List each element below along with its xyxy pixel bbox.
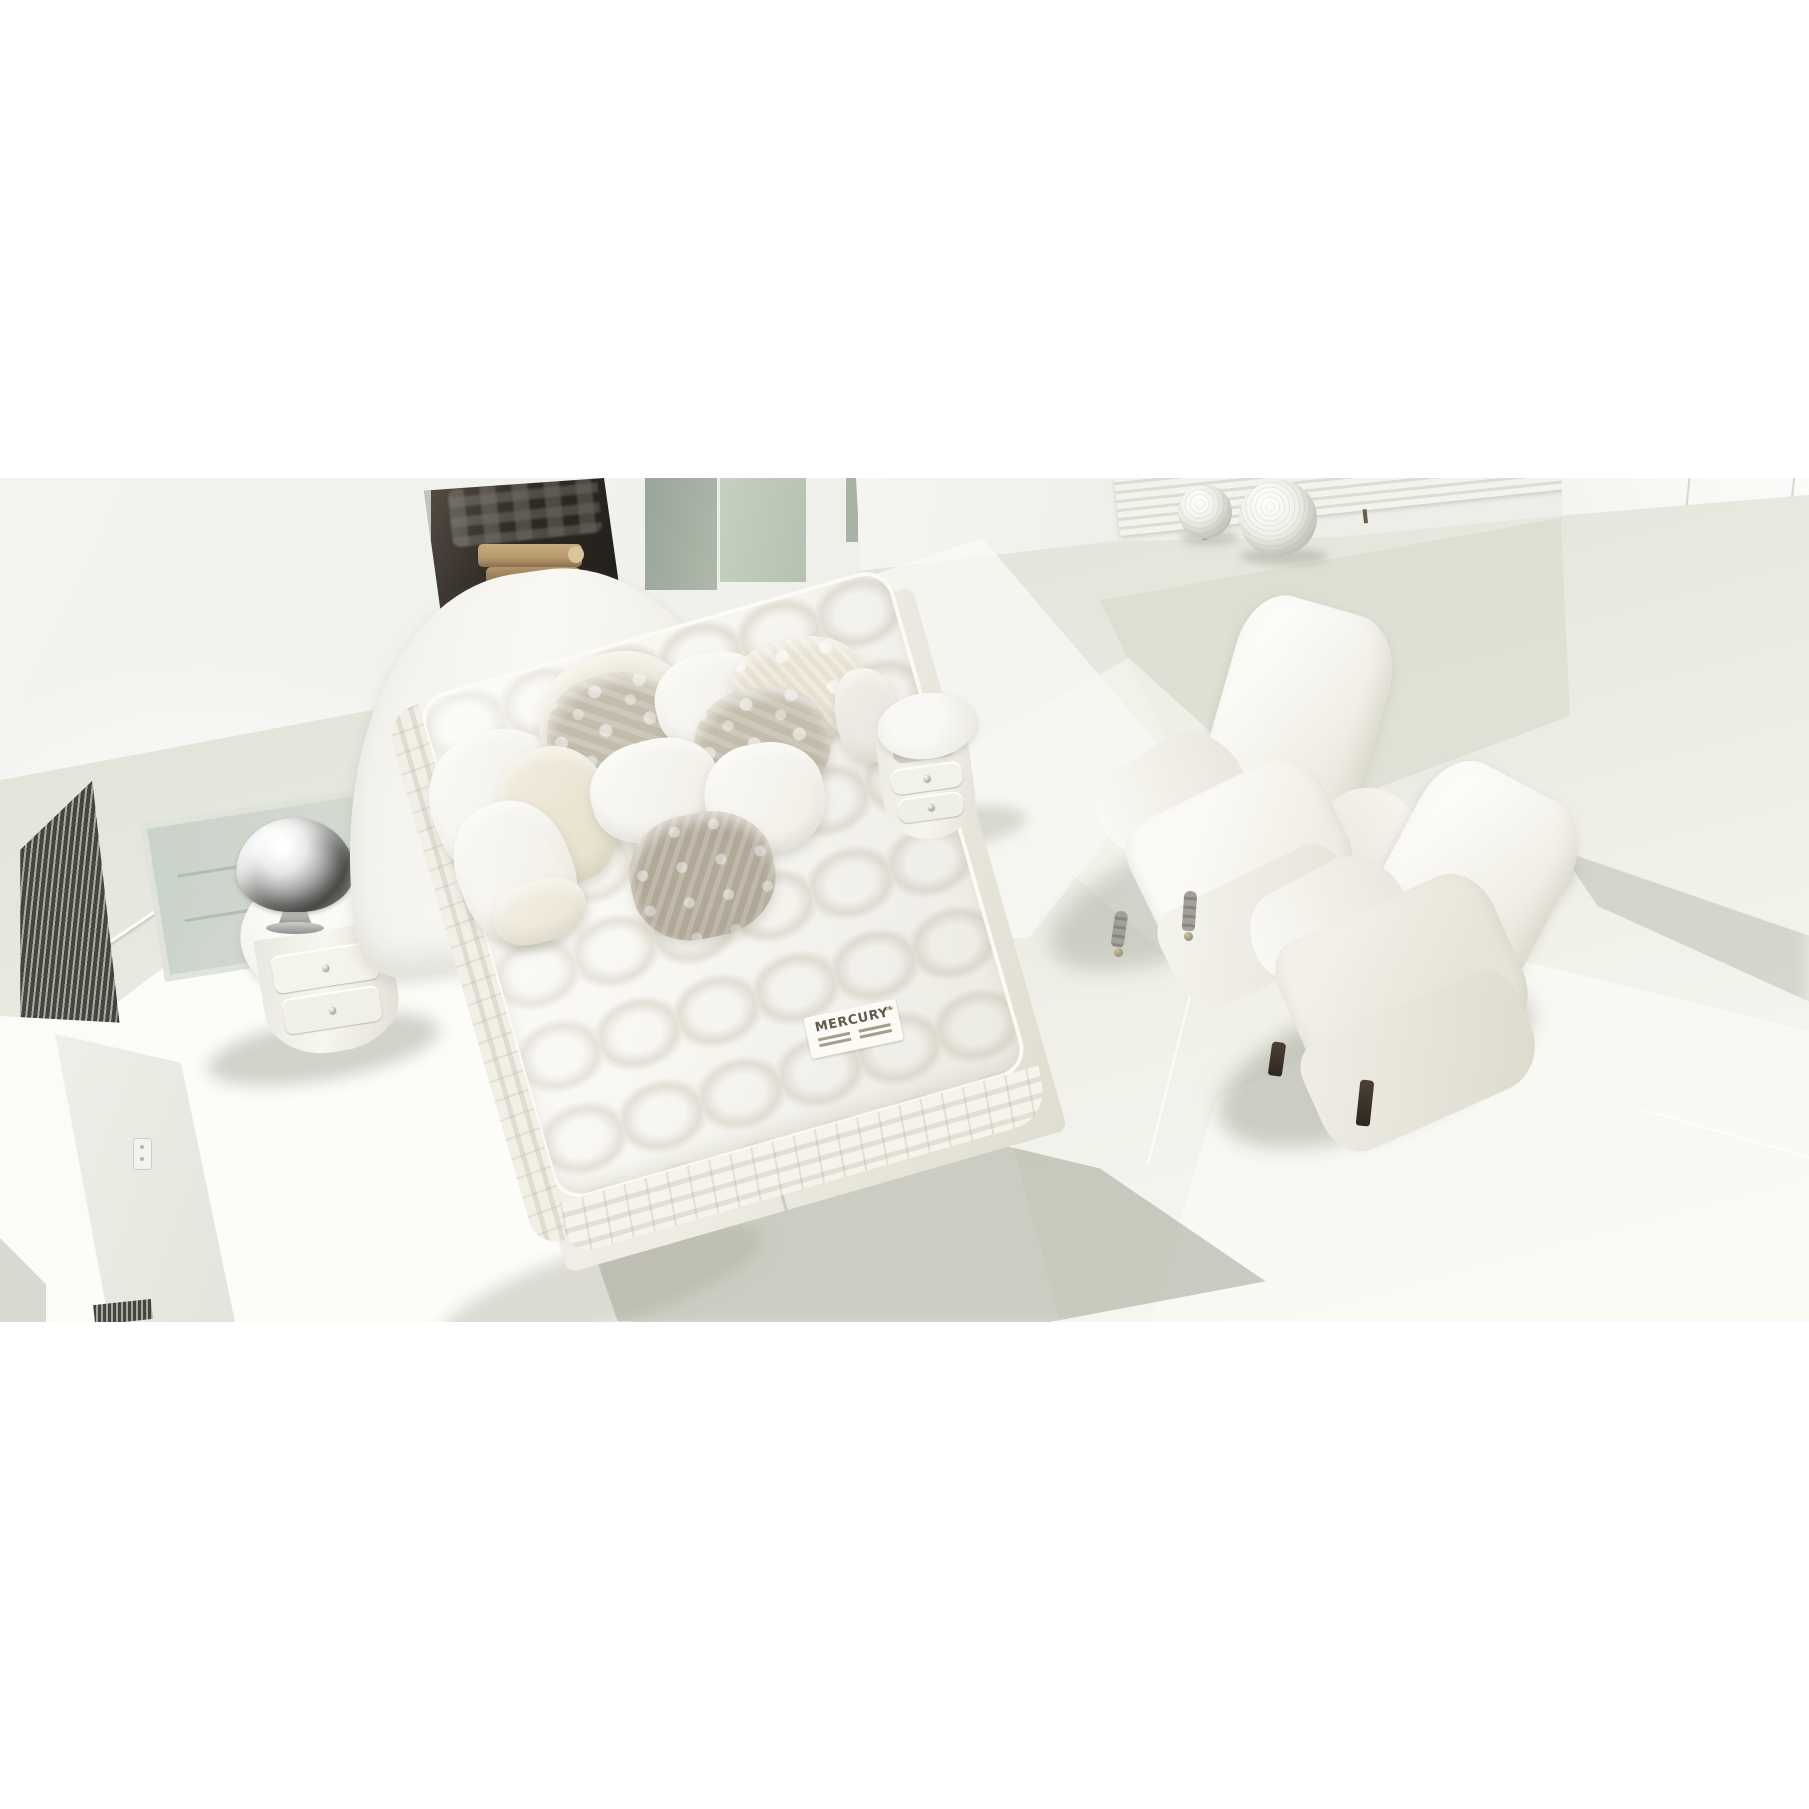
- switch-dot: [140, 1157, 144, 1161]
- armchair-with-dark-legs: [1240, 750, 1580, 1150]
- glass-partition-panel: [645, 478, 717, 590]
- turned-leg: [1182, 891, 1198, 932]
- niche-tufted-reflection: [447, 478, 602, 548]
- silver-bowl-base: [266, 922, 324, 934]
- bedroom-photo: MERCURY ❧: [0, 478, 1809, 1322]
- switch-dot: [140, 1145, 144, 1149]
- turned-leg: [1111, 910, 1129, 947]
- log-end-grain: [568, 546, 584, 563]
- caster-wheel: [1114, 948, 1123, 957]
- radiator-leg: [1363, 509, 1368, 523]
- firewood-log: [478, 544, 582, 567]
- niche-metal-frame: [420, 478, 431, 636]
- crystal-knob: [927, 803, 935, 811]
- decor-sphere-small: [1178, 485, 1232, 539]
- light-switch: [133, 1138, 152, 1170]
- glass-partition-panel: [720, 478, 806, 582]
- crystal-knob: [329, 1006, 337, 1014]
- nightstand-drawer: [896, 790, 965, 824]
- crystal-knob: [923, 775, 931, 783]
- mattress-brand-label: MERCURY ❧: [803, 999, 904, 1060]
- wooden-leg: [1268, 1041, 1287, 1077]
- crystal-knob: [322, 964, 330, 972]
- page-canvas: MERCURY ❧: [0, 0, 1809, 1809]
- caster-wheel: [1184, 932, 1193, 941]
- decor-sphere-large: [1239, 480, 1317, 556]
- nightstand-drawer: [281, 984, 383, 1035]
- glass-partition-sliver: [846, 478, 858, 542]
